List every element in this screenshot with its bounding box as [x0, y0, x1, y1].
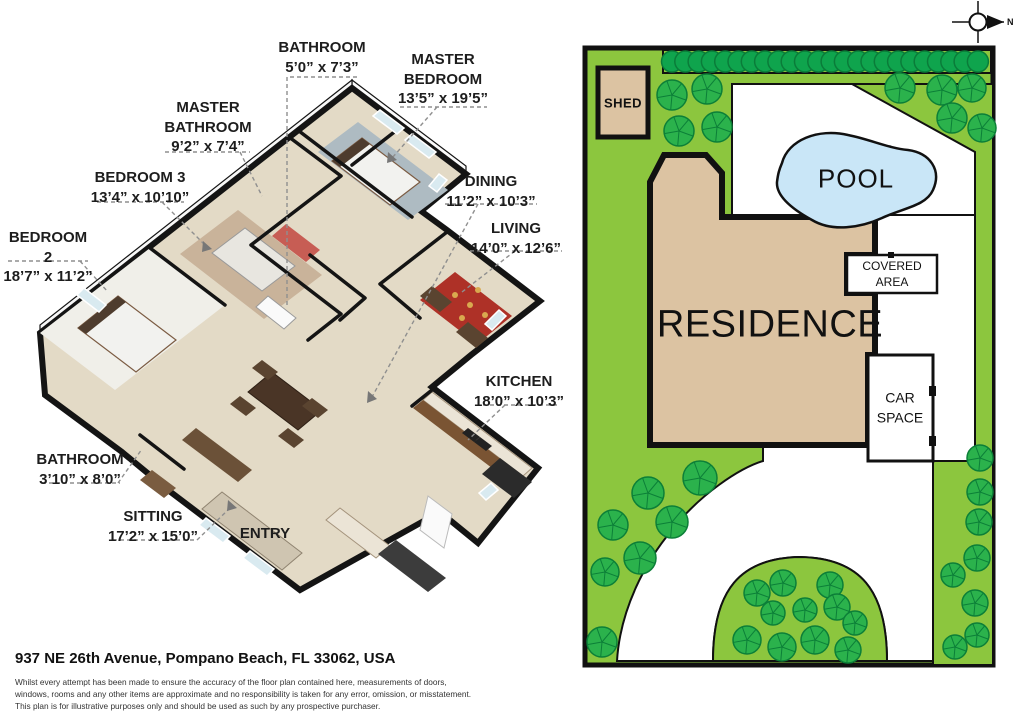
label-bedroom-2: BEDROOM 2 18’7” x 11’2” — [3, 228, 93, 287]
car-space-label: CAR SPACE — [871, 388, 929, 427]
label-entry: ENTRY — [220, 524, 310, 544]
room-dims: 14’0” x 12’6” — [461, 239, 571, 259]
room-name: MASTER BATHROOM — [164, 99, 251, 136]
room-dims: 3’10” x 8’0” — [25, 470, 135, 490]
label-master-bathroom: MASTER BATHROOM 9’2” x 7’4” — [158, 98, 258, 157]
label-living: LIVING 14’0” x 12’6” — [461, 219, 571, 258]
compass-north-arrow — [987, 15, 1004, 29]
room-name: SITTING — [123, 508, 182, 525]
compass-circle — [970, 14, 987, 31]
plan-drawing — [0, 0, 1024, 724]
room-name: LIVING — [491, 220, 541, 237]
room-name: BATHROOM — [36, 451, 123, 468]
car-space-jamb-2 — [929, 436, 936, 446]
room-name: BATHROOM — [278, 39, 365, 56]
disclaimer-line-1: Whilst every attempt has been made to en… — [15, 676, 447, 688]
compass-n-label: N — [1007, 17, 1014, 27]
covered-area-label: COVERED AREA — [857, 258, 927, 290]
room-dims: 11’2” x 10’3” — [436, 192, 546, 212]
label-dining: DINING 11’2” x 10’3” — [436, 172, 546, 211]
pool-label: POOL — [818, 164, 894, 195]
room-name: KITCHEN — [486, 373, 553, 390]
label-bathroom-top: BATHROOM 5’0” x 7’3” — [267, 38, 377, 77]
room-name: BEDROOM 3 — [95, 169, 186, 186]
residence-label: RESIDENCE — [657, 304, 883, 347]
room-dims: 9’2” x 7’4” — [158, 137, 258, 157]
room-dims: 17’2” x 15’0” — [93, 527, 213, 547]
room-dims: 13’4” x 10’10” — [80, 188, 200, 208]
room-dims: 13’5” x 19’5” — [396, 89, 491, 109]
room-dims: 18’0” x 10’3” — [459, 392, 579, 412]
label-kitchen: KITCHEN 18’0” x 10’3” — [459, 372, 579, 411]
property-address: 937 NE 26th Avenue, Pompano Beach, FL 33… — [15, 650, 395, 667]
hedge-bushes — [662, 51, 989, 72]
car-space-jamb-1 — [929, 386, 936, 396]
floor-plan-page: BATHROOM 5’0” x 7’3” MASTER BEDROOM 13’5… — [0, 0, 1024, 724]
room-name: BEDROOM 2 — [9, 229, 87, 266]
room-name: ENTRY — [240, 525, 290, 542]
entry-bench — [378, 540, 446, 592]
disclaimer-line-3: This plan is for illustrative purposes o… — [15, 700, 380, 712]
label-sitting: SITTING 17’2” x 15’0” — [93, 507, 213, 546]
room-name: MASTER BEDROOM — [404, 51, 482, 88]
label-bedroom-3: BEDROOM 3 13’4” x 10’10” — [80, 168, 200, 207]
floorplan-3d — [8, 77, 562, 592]
room-dims: 5’0” x 7’3” — [267, 58, 377, 78]
site-plan — [585, 48, 996, 665]
disclaimer-line-2: windows, rooms and any other items are a… — [15, 688, 471, 700]
shed-label: SHED — [604, 96, 642, 111]
compass — [952, 1, 1004, 43]
room-dims: 18’7” x 11’2” — [3, 267, 93, 287]
room-name: DINING — [465, 173, 518, 190]
label-master-bedroom: MASTER BEDROOM 13’5” x 19’5” — [396, 50, 491, 109]
label-bathroom-lower: BATHROOM 3’10” x 8’0” — [25, 450, 135, 489]
